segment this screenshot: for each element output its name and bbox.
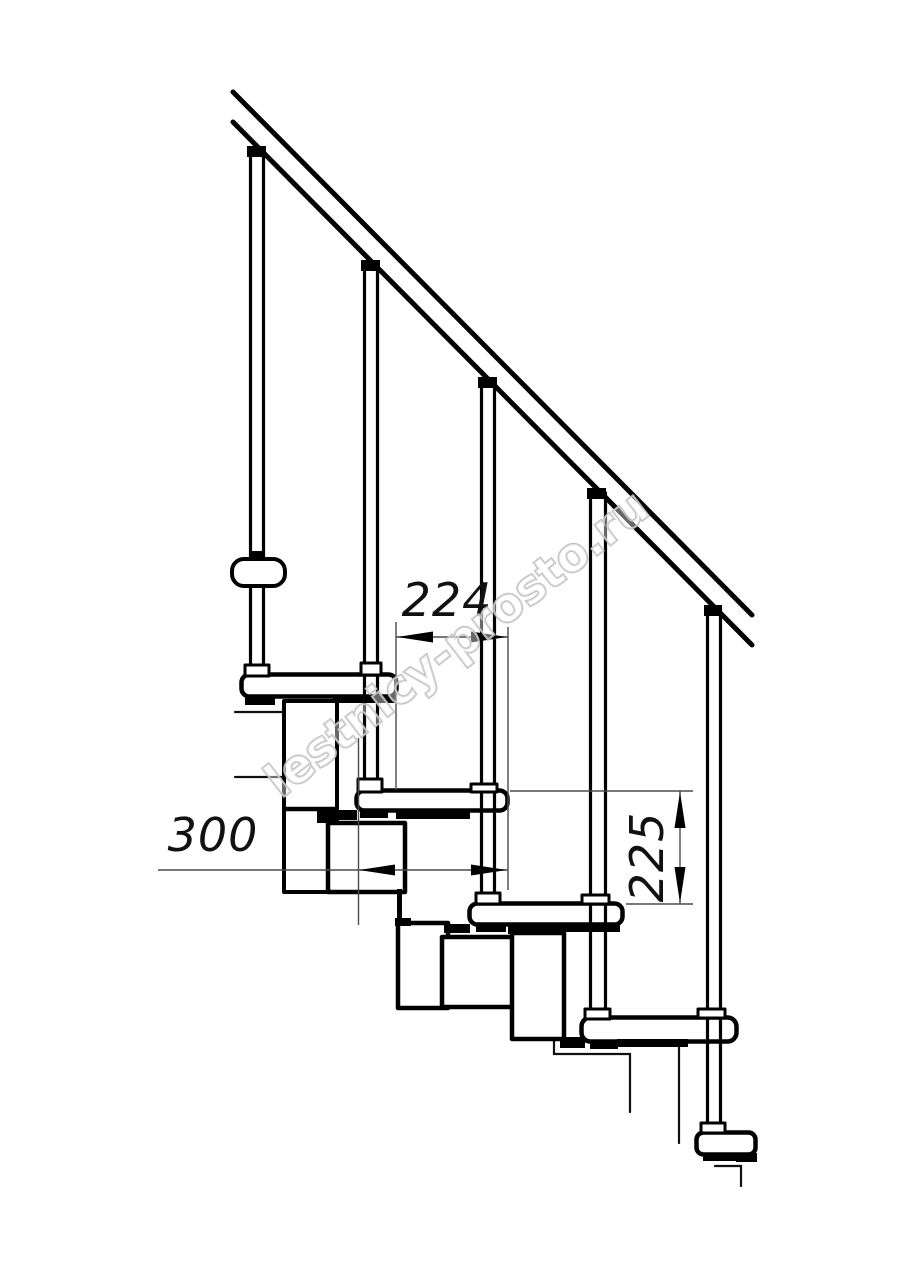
module-junction: [444, 924, 470, 933]
baluster-cap: [478, 377, 497, 388]
module-box-4: [442, 937, 518, 1007]
baluster-foot: [358, 779, 382, 792]
handrail-top-edge: [233, 92, 752, 615]
baluster-clamp: [471, 784, 497, 792]
baluster-cap: [704, 605, 722, 616]
tread-mount: [245, 697, 275, 705]
arrowhead-right: [471, 865, 507, 876]
module-junction: [560, 1037, 585, 1048]
dimension-label-225: 225: [620, 812, 674, 903]
module-box-5: [512, 933, 564, 1039]
baluster-foot: [476, 893, 500, 904]
module-junction: [317, 809, 337, 823]
baluster-clamp: [582, 895, 609, 904]
dimension-label-300: 300: [168, 808, 259, 862]
baluster-cap: [247, 146, 266, 157]
tread-4: [582, 1018, 737, 1042]
module-junction: [395, 918, 411, 926]
baluster-foot: [701, 1123, 725, 1133]
baluster-clamp: [698, 1009, 725, 1018]
tread-mount: [617, 1039, 688, 1047]
module-junction: [508, 926, 522, 934]
staircase-drawing-page: 224 300 225 lestnicy-prosto.ru: [0, 0, 914, 1280]
tread-mount: [360, 810, 388, 818]
module-box-2: [328, 823, 405, 892]
baluster-foot: [585, 1009, 610, 1019]
profile-step: [715, 1166, 741, 1186]
tread-mount: [334, 810, 357, 820]
tread-5: [697, 1133, 756, 1155]
dimension-labels: 224 300 225: [168, 573, 674, 902]
handrail: [233, 92, 752, 645]
tread-3: [470, 904, 623, 925]
handrail-bracket: [232, 559, 285, 586]
baluster-cap: [361, 260, 380, 271]
arrowhead-down: [675, 867, 686, 903]
baluster-foot: [245, 665, 269, 676]
staircase-drawing: 224 300 225 lestnicy-prosto.ru: [0, 0, 914, 1280]
watermark: lestnicy-prosto.ru: [255, 479, 659, 808]
profile-step: [554, 1041, 630, 1112]
arrowhead-up: [675, 792, 686, 828]
tread-mount: [590, 1042, 618, 1049]
tread-mount: [476, 925, 506, 932]
tread-mount: [396, 811, 470, 819]
tread-mount: [736, 1157, 757, 1162]
